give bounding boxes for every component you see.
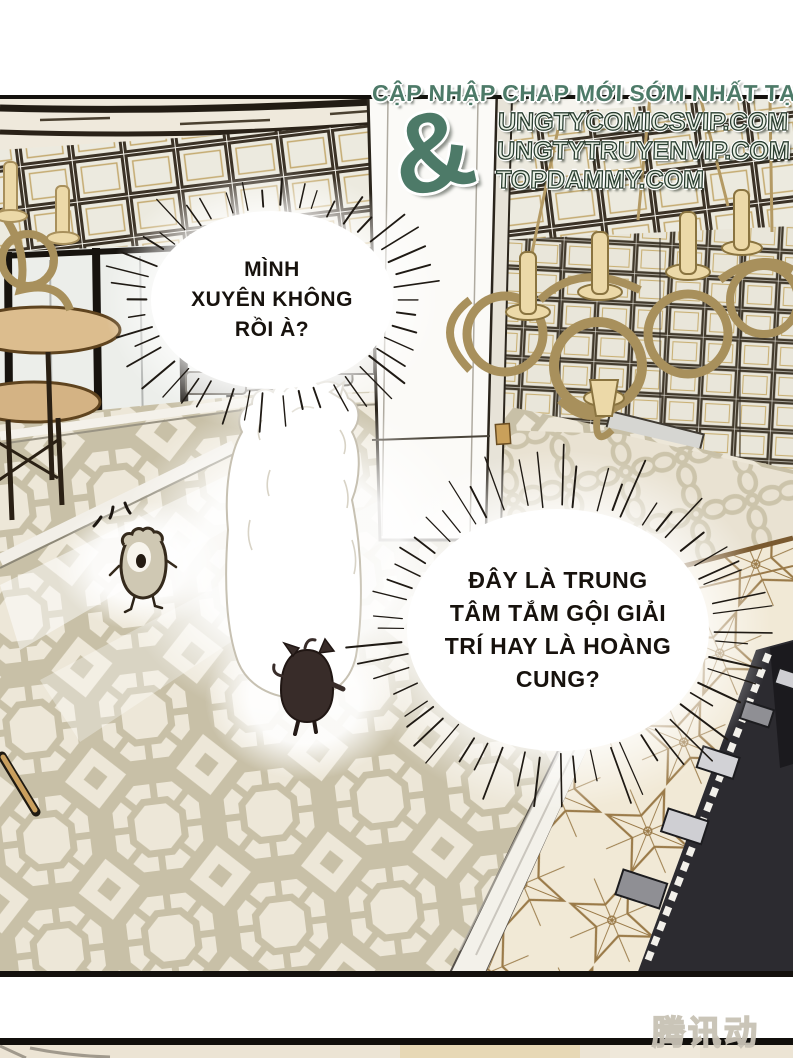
- bubble-line: TRÍ HAY LÀ HOÀNG: [445, 630, 672, 663]
- promo-site-url: UNGTYCOMICSVIP.COM: [498, 108, 792, 137]
- bubble-line: CUNG?: [516, 663, 600, 696]
- tencent-watermark: 腾讯动漫: [652, 1006, 793, 1058]
- promo-site-url: TOPDAMMY.COM: [495, 166, 789, 195]
- bubble-line: RỒI À?: [235, 315, 309, 345]
- speech-bubble-2-text: ĐÂY LÀ TRUNG TÂM TẮM GỘI GIẢI TRÍ HAY LÀ…: [408, 542, 708, 718]
- bubble-line: ĐÂY LÀ TRUNG: [468, 564, 647, 597]
- speech-bubble-1-text: MÌNH XUYÊN KHÔNG RỒI À?: [152, 240, 392, 360]
- promo-site-url: UNGTYTRUYENVIP.COM: [496, 137, 790, 166]
- comic-page: CẬP NHẬP CHAP MỚI SỚM NHẤT TẠI & UNGTYCO…: [0, 0, 793, 1058]
- bubble-line: MÌNH: [244, 255, 300, 285]
- bubble-line: XUYÊN KHÔNG: [191, 285, 353, 315]
- promo-site-list: UNGTYCOMICSVIP.COM UNGTYTRUYENVIP.COM TO…: [495, 108, 791, 195]
- bubble-line: TÂM TẮM GỘI GIẢI: [450, 597, 666, 630]
